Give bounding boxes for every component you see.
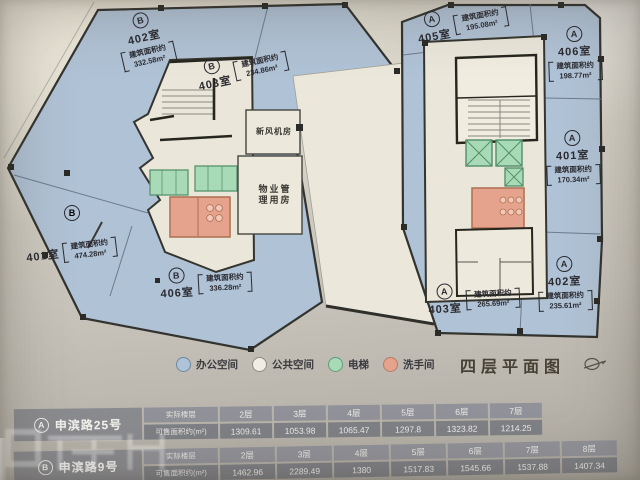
floor-cell: 4层 — [334, 445, 389, 461]
floor-cell: 4层 — [328, 405, 380, 421]
legend-item-office: 办公空间 — [176, 357, 238, 372]
floor-cell: 6层 — [436, 403, 488, 419]
restroom-swatch — [383, 357, 398, 372]
area-cell: 1053.98 — [274, 422, 326, 438]
floor-cell: 5层 — [391, 443, 446, 459]
area-note: 建筑面积约195.08m² — [453, 6, 509, 35]
room-label-a402: A 402室 建筑面积约235.61m² — [537, 255, 592, 312]
building-badge: B — [168, 267, 185, 284]
room-number: 403室 — [428, 300, 462, 318]
floor-cell: 5层 — [382, 404, 434, 420]
area-note: 建筑面积约234.86m² — [233, 50, 289, 81]
legend-item-restroom: 洗手间 — [383, 357, 435, 372]
area-cell: 1380 — [334, 462, 389, 478]
room-label-a401: A 401室 建筑面积约170.34m² — [545, 129, 600, 186]
floor-cell: 2层 — [220, 406, 272, 422]
legend-item-elevator: 电梯 — [328, 357, 369, 372]
area-cell: 1297.8 — [382, 421, 434, 437]
area-cell: 1214.25 — [490, 420, 542, 436]
area-cell: 1462.96 — [220, 464, 275, 480]
area-note: 建筑面积约265.69m² — [466, 287, 520, 310]
area-cell: 1545.66 — [448, 459, 503, 475]
office-space-swatch — [176, 357, 191, 372]
watermark-logo — [2, 418, 202, 480]
building-badge-b: B — [64, 205, 80, 221]
elevator-swatch — [328, 357, 343, 372]
room-label-a406: A 406室 建筑面积约198.77m² — [547, 25, 602, 82]
area-cell: 1323.82 — [436, 420, 488, 436]
room-number: 401室 — [25, 246, 60, 266]
floorplan-drawing — [0, 0, 640, 400]
room-number: 406室 — [160, 284, 194, 302]
restroom-right — [472, 188, 524, 228]
north-arrow-icon — [582, 355, 608, 373]
public-space-swatch — [252, 357, 267, 372]
area-cell: 1537.88 — [505, 458, 560, 474]
floor-cell: 3层 — [274, 405, 326, 421]
area-cell: 1309.61 — [220, 423, 272, 439]
room-number: 402室 — [548, 272, 582, 289]
building-badge: A — [436, 283, 453, 300]
room-number: 401室 — [556, 146, 590, 163]
building-badge: A — [556, 256, 573, 273]
floor-cell: 7层 — [505, 441, 560, 457]
floorplan-photo: B 402室 建筑面积约332.58m² B 403室 建筑面积约234.86m… — [0, 0, 640, 480]
area-note: 建筑面积约198.77m² — [548, 60, 602, 82]
legend-item-public: 公共空间 — [252, 357, 314, 372]
plan-title: 四层平面图 — [460, 353, 565, 377]
floor-cell: 3层 — [277, 446, 332, 462]
building-badge: A — [566, 26, 583, 43]
room-label-a403: A 403室 建筑面积约265.69m² — [427, 280, 520, 318]
building-badge: A — [422, 10, 441, 29]
area-note: 建筑面积约235.61m² — [538, 290, 592, 312]
restroom-left — [170, 197, 230, 237]
room-label-b406: B 406室 建筑面积约336.28m² — [159, 264, 252, 302]
area-cell: 1065.47 — [328, 422, 380, 438]
floor-cell: 7层 — [490, 403, 542, 419]
property-mgmt-room-label: 物业管理用房 — [254, 184, 296, 206]
building-badge: A — [564, 130, 581, 147]
area-note: 建筑面积约336.28m² — [198, 271, 252, 294]
area-cell: 2289.49 — [277, 463, 332, 479]
legend: 办公空间 公共空间 电梯 洗手间 — [176, 357, 435, 372]
floor-cell: 8层 — [562, 440, 617, 456]
fresh-air-room-label: 新风机房 — [249, 126, 299, 137]
floor-cell: 6层 — [448, 442, 503, 458]
area-cell: 1407.34 — [562, 457, 617, 473]
floor-cell: 2层 — [220, 447, 275, 463]
photo-edge-highlight — [0, 438, 7, 480]
room-number: 406室 — [558, 42, 592, 59]
area-note: 建筑面积约170.34m² — [546, 164, 600, 186]
area-cell: 1517.83 — [391, 460, 446, 476]
right-core — [424, 36, 547, 302]
